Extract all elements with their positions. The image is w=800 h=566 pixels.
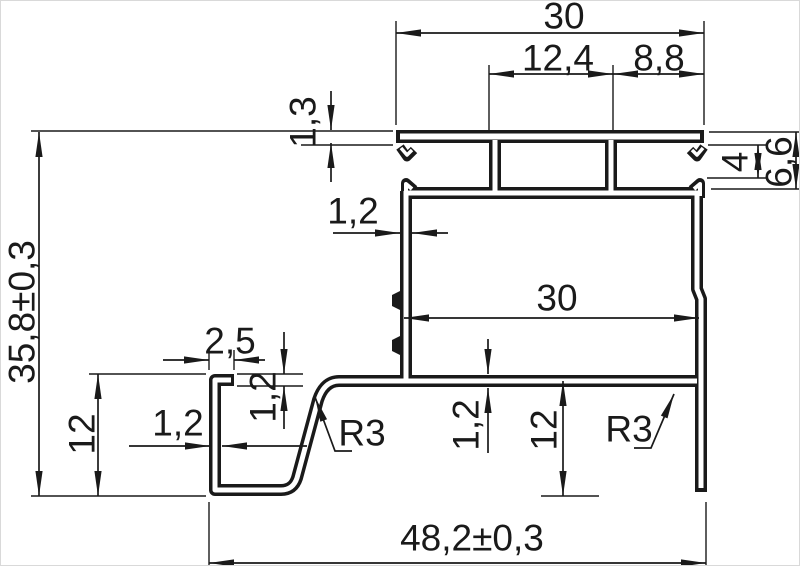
profile-cross-section-drawing: 30 12,4 8,8 1,3 35,8±0,3 1,2 30 6,6 4 2,… xyxy=(1,1,800,566)
profile-wall-bump-lower xyxy=(392,336,400,355)
dim-text-lip-thickness: 1,2 xyxy=(243,371,284,422)
dim-text-overall-width: 48,2±0,3 xyxy=(400,518,544,559)
dim-text-channel-depth: 12 xyxy=(62,413,103,454)
dim-text-channel-wall-thickness: 1,2 xyxy=(152,403,203,444)
profile-wall-bump-upper xyxy=(392,291,400,310)
dim-text-fillet-right: R3 xyxy=(605,409,652,450)
dim-text-leg-height: 12 xyxy=(524,409,565,450)
dim-text-upper-wall-thickness: 1,2 xyxy=(327,191,378,232)
profile-plate-barbs-core xyxy=(401,148,703,155)
dim-text-fillet-left: R3 xyxy=(338,413,385,454)
dim-text-lip-width: 2,5 xyxy=(204,321,255,362)
dim-text-top-slot-span: 12,4 xyxy=(522,38,594,79)
dim-text-overall-height: 35,8±0,3 xyxy=(2,240,43,384)
dim-text-hook-opening: 4 xyxy=(715,152,756,173)
technical-drawing-page: 30 12,4 8,8 1,3 35,8±0,3 1,2 30 6,6 4 2,… xyxy=(0,0,800,566)
dimension-lines xyxy=(39,33,796,563)
dim-text-plate-thickness: 1,3 xyxy=(283,96,324,147)
dim-text-top-width: 30 xyxy=(543,1,584,37)
dim-text-base-thickness: 1,2 xyxy=(446,399,487,450)
profile-plate-barbs xyxy=(400,147,704,157)
dim-text-hook-total-depth: 6,6 xyxy=(759,136,800,187)
dim-text-inner-width: 30 xyxy=(536,278,577,319)
dim-text-top-right-span: 8,8 xyxy=(633,38,684,79)
extension-lines xyxy=(31,21,799,565)
